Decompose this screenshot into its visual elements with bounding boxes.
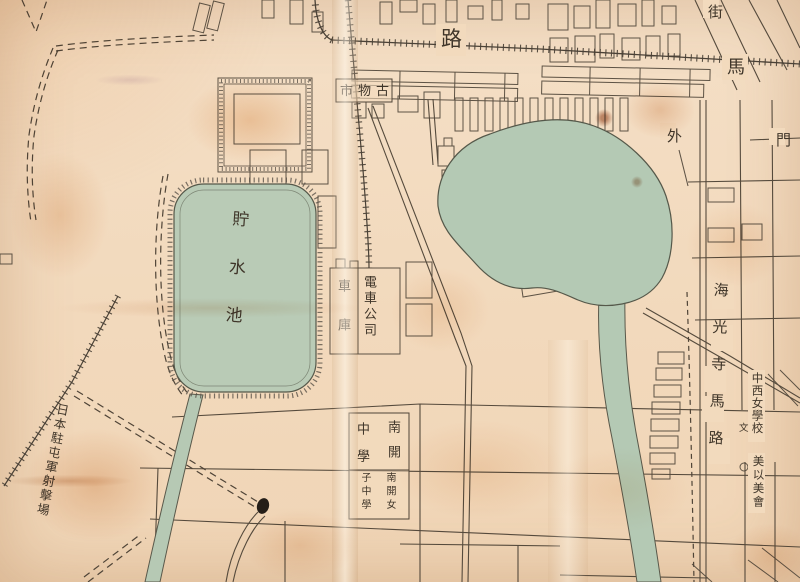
nankai-girls-school-box — [349, 470, 409, 519]
label-meiyimei-church: 美以美會 — [751, 455, 763, 509]
label-antique-market: 市物古 — [340, 84, 394, 97]
label-nankai-col-left: 中學 — [356, 422, 369, 476]
label-tram-depot: 車庫 — [337, 279, 350, 357]
label-street-char: 街 — [708, 6, 723, 21]
label-nankai-col-right: 南開 — [387, 420, 400, 470]
label-wai-char: 外 — [667, 130, 682, 145]
map: 路 街 馬 外 門 海光寺馬路 中西女學校 文 美以美會 貯水池 電車公司 車庫… — [0, 0, 800, 582]
pond — [438, 120, 672, 306]
label-nankai-girls-col-right: 南開女 — [384, 472, 394, 513]
reservoir-outlet-canal — [145, 394, 203, 582]
label-road-char: 路 — [441, 29, 462, 50]
map-graphics — [0, 0, 800, 582]
label-wen-symbol: 文 — [739, 425, 749, 435]
label-men-char: 門 — [776, 134, 791, 149]
label-nankai-girls-col-left: 子中學 — [359, 472, 369, 513]
church-symbol-circle — [740, 463, 748, 471]
label-zhongxi-girls-school: 中西女學校 — [750, 372, 762, 435]
label-tram-company: 電車公司 — [363, 275, 376, 339]
label-ma-char: 馬 — [727, 58, 745, 76]
